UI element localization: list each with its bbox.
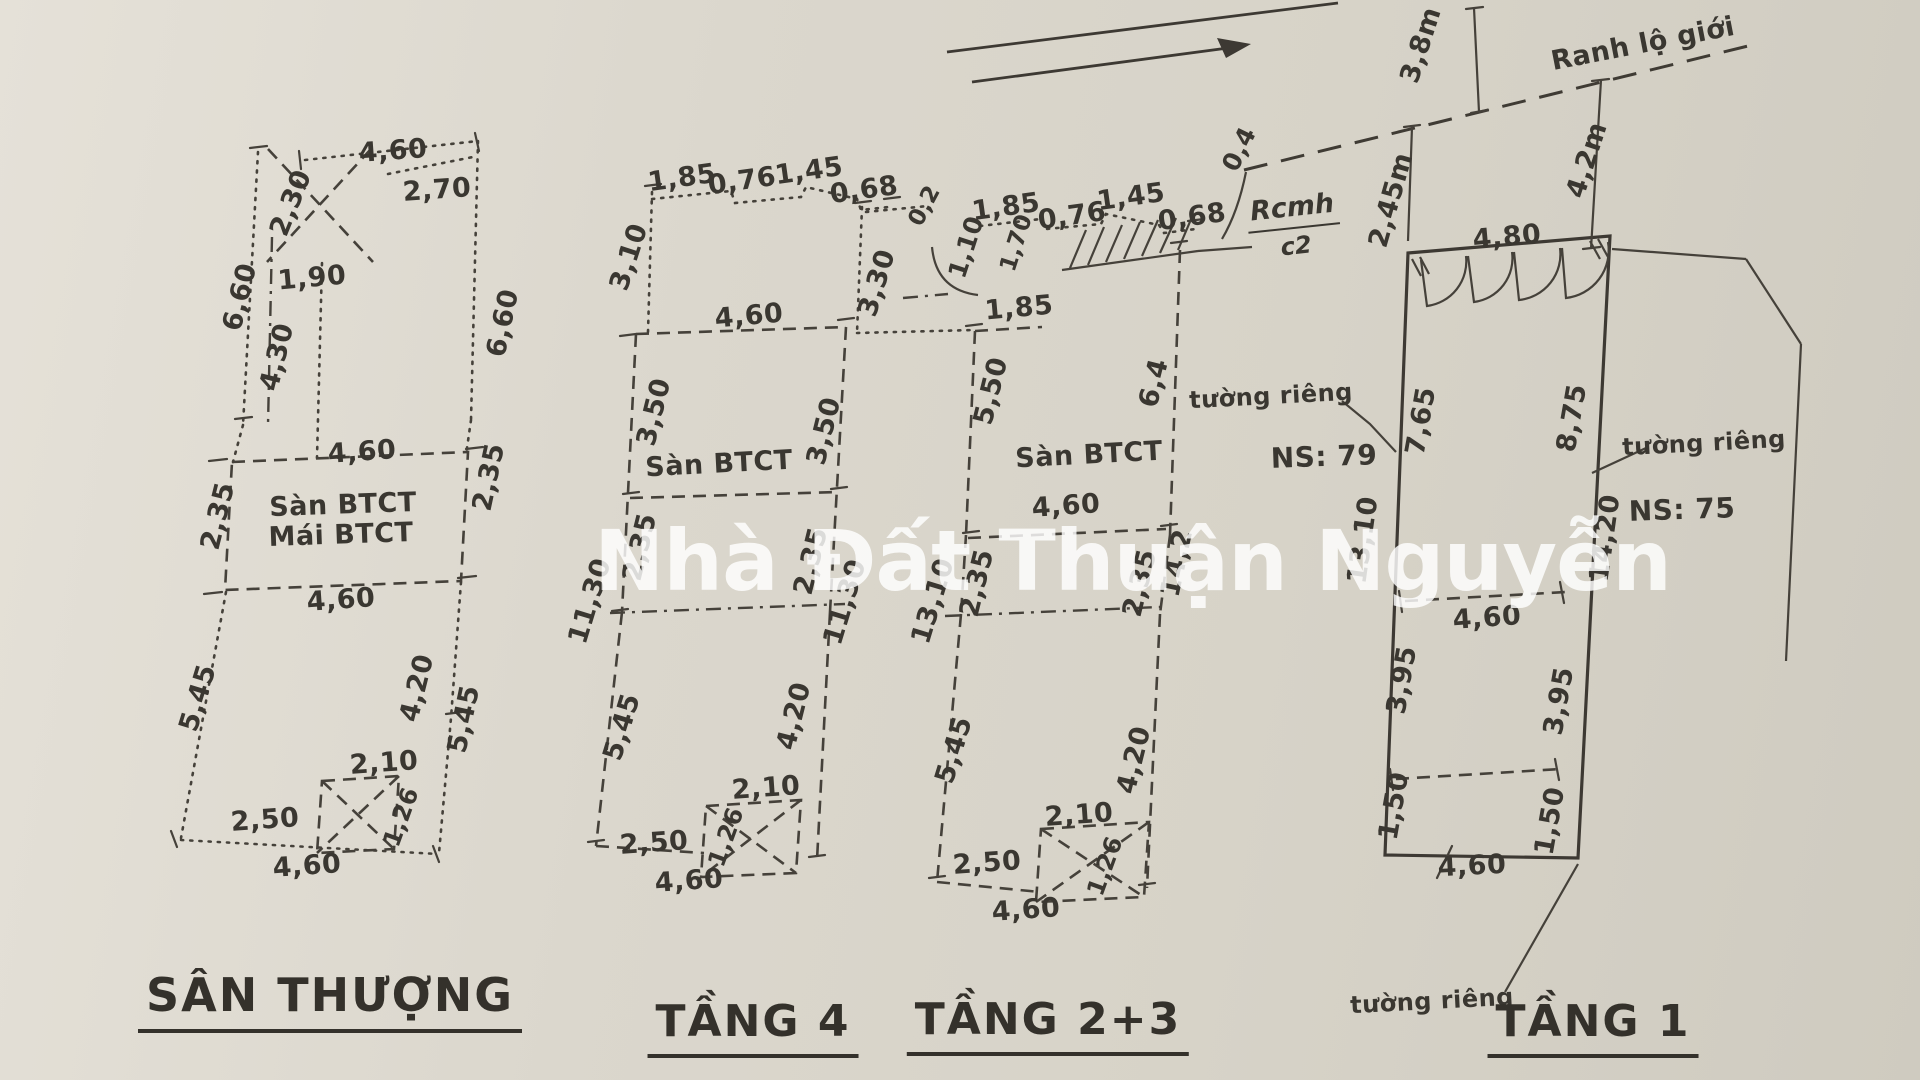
dimension-label: 4,30 bbox=[256, 320, 299, 393]
annotation-label: Sàn BTCT bbox=[269, 489, 417, 521]
dimension-label: 4,60 bbox=[306, 584, 376, 616]
dimension-label: 1,26 bbox=[379, 784, 422, 850]
dimension-label: 1,26 bbox=[1083, 833, 1126, 899]
floor-label-san-thuong: SÂN THƯỢNG bbox=[138, 968, 522, 1033]
dimension-label: 5,45 bbox=[931, 713, 977, 787]
dimension-label: 6,60 bbox=[483, 287, 524, 360]
dimension-label: 0,68 bbox=[1156, 199, 1228, 235]
annotation-label: Ranh lộ giới bbox=[1549, 13, 1737, 75]
dimension-label: 2,50 bbox=[230, 804, 300, 836]
dimension-label: 2,50 bbox=[952, 847, 1022, 879]
dimension-label: 2,35 bbox=[469, 441, 510, 514]
annotation-label: NS: 79 bbox=[1270, 441, 1377, 473]
watermark-text: Nhà Đất Thuận Nguyễn bbox=[594, 512, 1671, 610]
dimension-label: 4,2m bbox=[1562, 119, 1612, 201]
dimension-label: 5,45 bbox=[444, 683, 485, 756]
annotation-label: Sàn BTCT bbox=[645, 447, 794, 482]
dimension-label: 1,50 bbox=[1531, 785, 1570, 857]
dimension-label: 4,60 bbox=[327, 436, 397, 468]
handwritten-note: Rcmh c2 bbox=[1245, 187, 1344, 264]
dimension-label: 0,4 bbox=[1218, 123, 1261, 175]
annotation-label: Sàn BTCT bbox=[1015, 438, 1164, 473]
floor-label-tang-1: TẦNG 1 bbox=[1488, 996, 1699, 1058]
dimension-label: 3,10 bbox=[606, 220, 653, 294]
dimension-label: 2,10 bbox=[349, 747, 419, 779]
dimension-label: 4,60 bbox=[1437, 851, 1507, 882]
dimension-label: 1,26 bbox=[704, 804, 747, 870]
blueprint-canvas: 4,602,702,301,906,604,306,604,602,352,35… bbox=[0, 0, 1920, 1080]
dimension-label: 0,76 bbox=[706, 163, 778, 199]
dimension-label: 2,70 bbox=[402, 174, 472, 206]
dimension-label: 4,60 bbox=[358, 135, 428, 167]
dimension-label: 4,60 bbox=[654, 865, 724, 897]
dimension-label: 3,30 bbox=[854, 246, 900, 320]
dimension-label: 4,60 bbox=[991, 894, 1061, 926]
dimension-label: 3,95 bbox=[1383, 644, 1422, 716]
dimension-label: 4,20 bbox=[1113, 723, 1156, 796]
dimension-label: 4,20 bbox=[773, 679, 816, 752]
dimension-label: 1,50 bbox=[1375, 770, 1414, 842]
dimension-label: 5,45 bbox=[175, 661, 221, 735]
floor-label-tang-4: TẦNG 4 bbox=[648, 996, 859, 1058]
dimension-label: 3,8m bbox=[1396, 4, 1446, 86]
dimension-label: 1,90 bbox=[277, 262, 348, 295]
annotation-label: Mái BTCT bbox=[268, 519, 414, 551]
dimension-label: 4,80 bbox=[1472, 221, 1543, 254]
dimension-label: 3,50 bbox=[803, 394, 846, 467]
dimension-label: 2,45m bbox=[1365, 150, 1418, 251]
dimension-label: 6,4 bbox=[1135, 356, 1173, 410]
dimension-label: 5,45 bbox=[599, 690, 645, 764]
dimension-label: 3,50 bbox=[633, 375, 676, 448]
dimension-label: 0,68 bbox=[828, 172, 900, 208]
dimension-label: 2,10 bbox=[731, 772, 801, 804]
dimension-label: 4,20 bbox=[396, 651, 439, 724]
dimension-label: 4,60 bbox=[714, 300, 785, 333]
dimension-label: 2,50 bbox=[619, 827, 689, 859]
dimension-label: 2,10 bbox=[1044, 799, 1114, 831]
dimension-label: 2,35 bbox=[197, 479, 240, 552]
dimension-label: 2,30 bbox=[266, 166, 317, 240]
annotation-label: tường riêng bbox=[1189, 380, 1354, 413]
dimension-label: 8,75 bbox=[1553, 382, 1592, 454]
dimension-label: 3,95 bbox=[1540, 665, 1579, 737]
dimension-label: 4,60 bbox=[272, 850, 342, 882]
dimension-label: 5,50 bbox=[970, 354, 1013, 427]
dimension-label: 0,2 bbox=[905, 182, 945, 230]
floor-label-tang-2-3: TẦNG 2+3 bbox=[907, 994, 1189, 1056]
dimension-label: 6,60 bbox=[219, 260, 262, 333]
dimension-label: 1,85 bbox=[984, 292, 1055, 325]
dimension-label: 7,65 bbox=[1402, 385, 1441, 457]
annotation-label: tường riêng bbox=[1622, 427, 1787, 460]
